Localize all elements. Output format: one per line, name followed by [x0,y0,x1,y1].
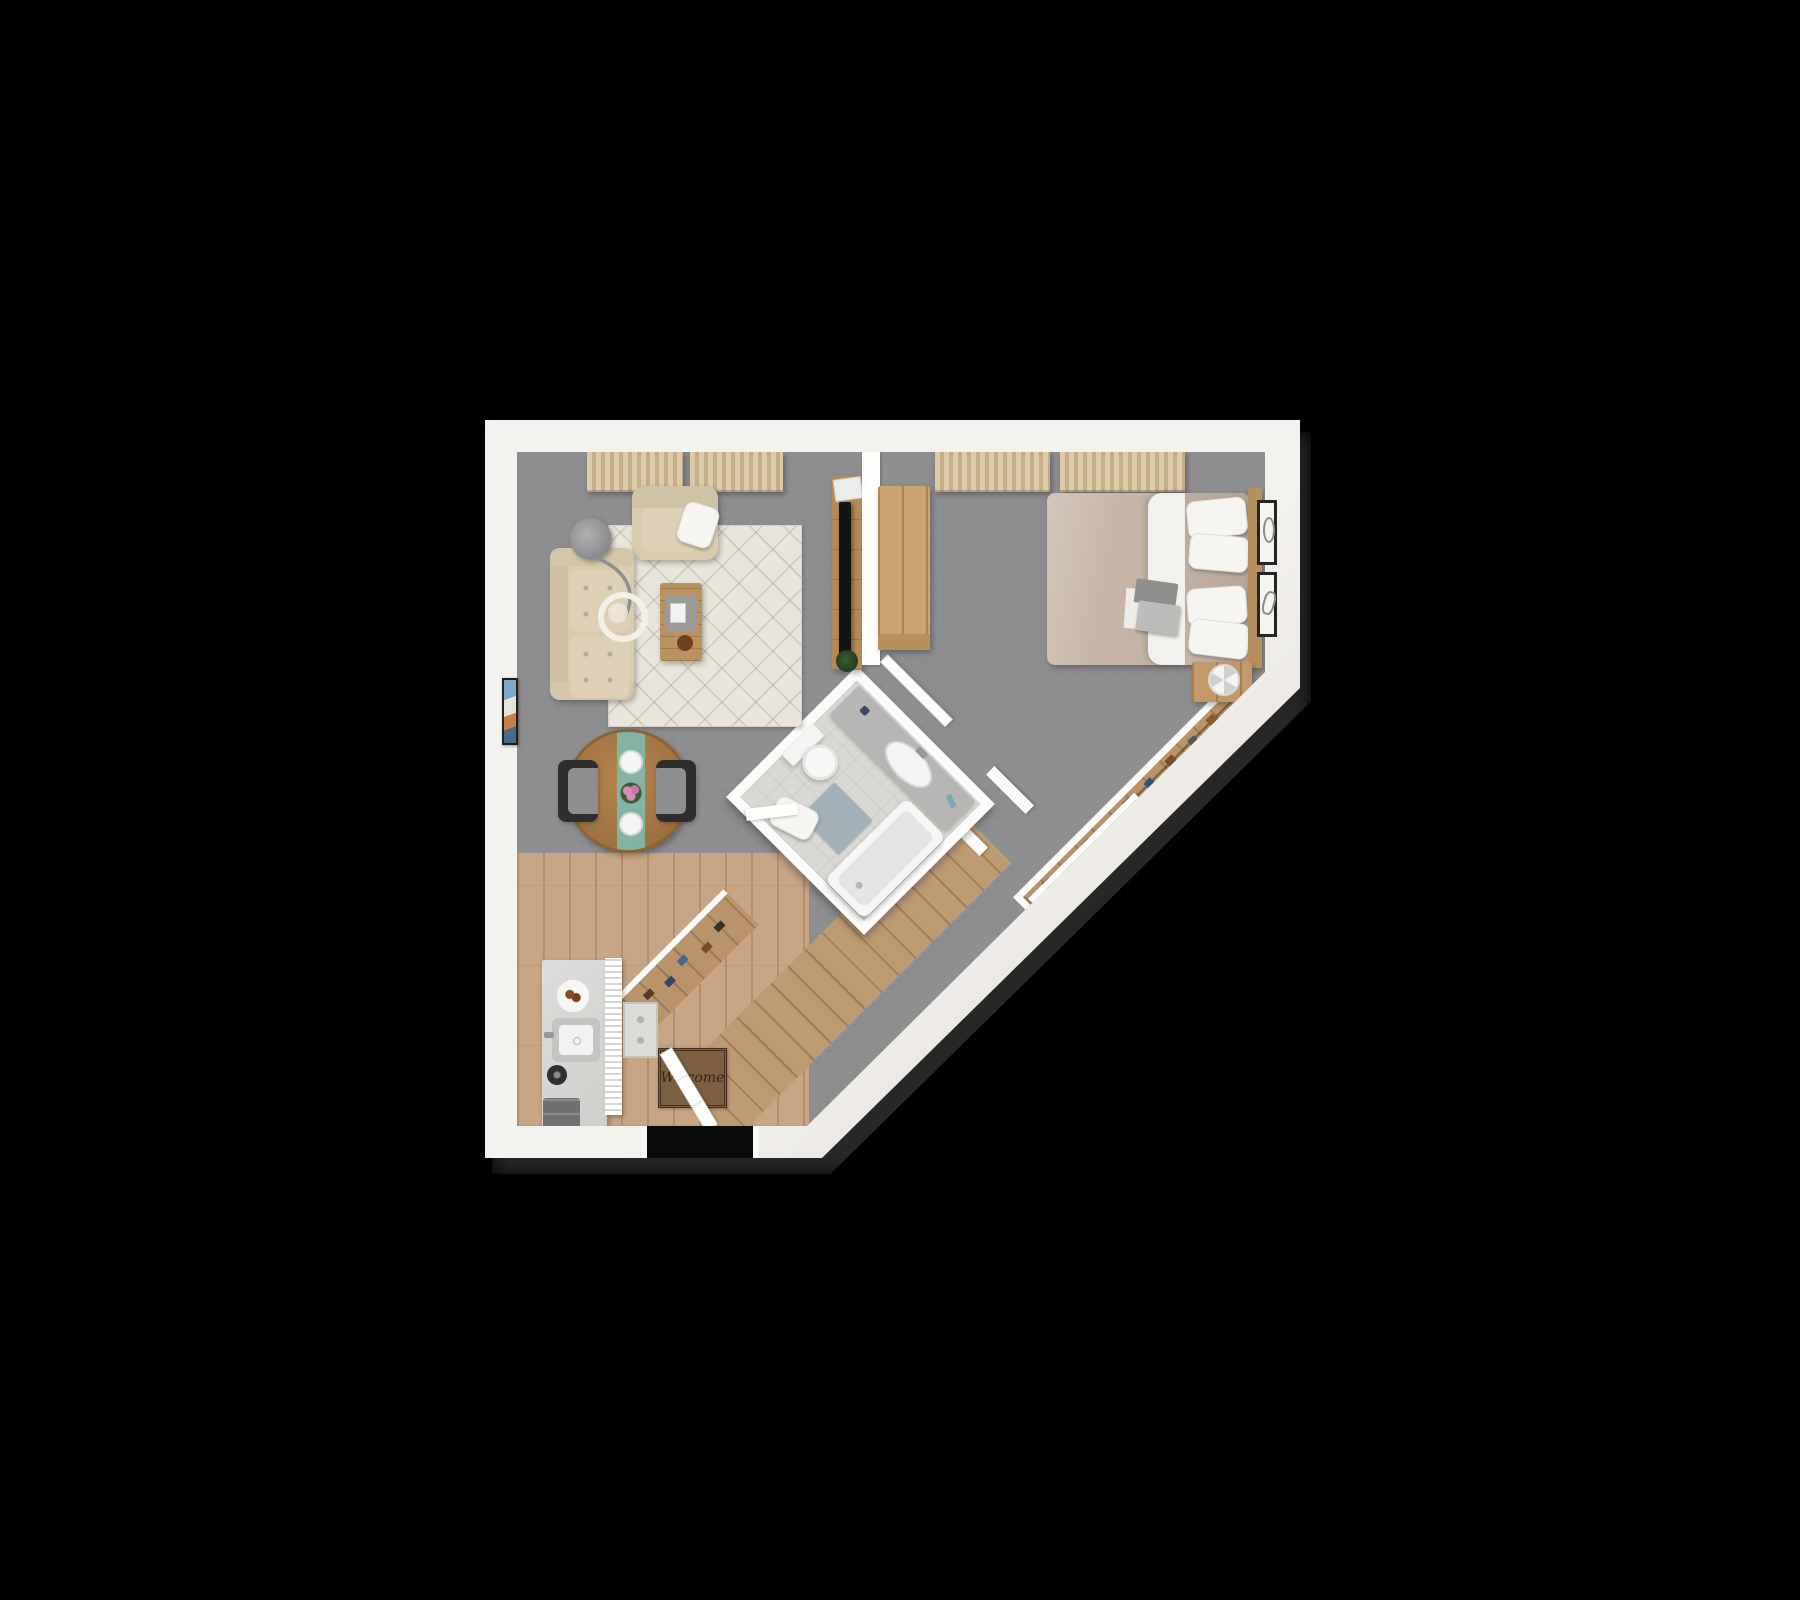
sofa [550,548,634,700]
entry-door-jamb [753,1126,759,1158]
floorplan-stage: Welcome [0,0,1800,1600]
kitchen-sink [552,1018,600,1062]
fan-icon [1208,664,1240,696]
place-setting-plate [619,750,643,774]
book-item [670,603,686,623]
hall-opening-jamb [986,766,1034,814]
desk [878,486,930,650]
place-setting-plate [619,812,643,836]
small-rug [623,1002,658,1058]
bedroom-wall-art [1257,500,1277,565]
soap-item [859,705,870,716]
sink-drain-icon [573,1037,581,1045]
kettle [547,1065,567,1085]
kitchen-counter [542,960,607,1128]
sofa-cushion [570,636,630,698]
toiletry-item [945,794,956,809]
desk-edge [878,634,930,650]
shoe-item [664,976,676,988]
bedroom-wall-art [1257,572,1277,637]
floorplan: Welcome [485,420,1300,1160]
trash-drawer-unit [543,1098,580,1128]
dining-chair-seat [568,768,598,814]
art-sketch-icon [1260,590,1278,616]
entry-doorway-void [647,1126,753,1158]
living-wall-art [502,678,518,745]
bed-sheet-fold [1148,493,1185,665]
sink-faucet-icon [544,1032,554,1038]
floor-lamp-shade [570,518,612,560]
plant [836,650,858,672]
sofa-backrest [550,548,568,700]
dining-chair [656,760,696,822]
bedroom-curtain [935,451,1050,492]
sofa-cushion [570,570,630,632]
entry-door-jamb [641,1126,647,1158]
art-sketch-icon [1263,517,1275,543]
shoe-item [643,988,655,1000]
towel [766,793,822,842]
bedroom-curtain [1060,451,1185,492]
shoe-item [677,954,689,966]
dining-chair-seat [656,768,686,814]
magazine-stack [833,476,864,502]
shoe-item [701,942,713,954]
dining-chair [558,760,598,822]
armchair [632,486,718,560]
laptop-base [1135,600,1181,636]
coffee-table [660,583,702,661]
bed [1047,493,1250,665]
bed-pillow [1188,532,1251,573]
tv [839,502,851,658]
plate-of-cookies [556,979,590,1013]
tv-console [832,476,862,670]
bowl [677,635,693,651]
slatted-cabinet [605,958,622,1115]
shoe-item [713,920,725,932]
flower-vase [619,782,643,804]
bed-pillow [1187,617,1251,660]
sink-basin [877,733,941,797]
